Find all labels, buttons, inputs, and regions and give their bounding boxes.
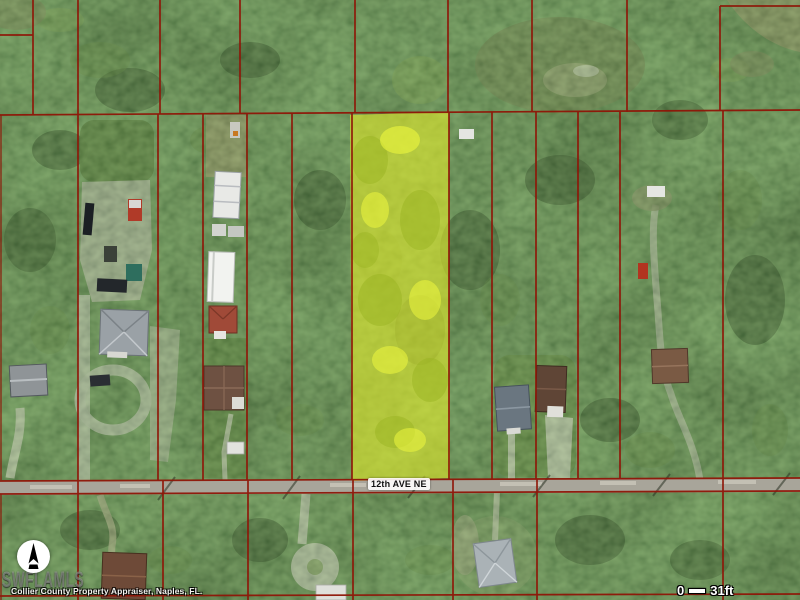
compass-logo <box>17 540 50 573</box>
scale-start-value: 0 <box>677 583 684 598</box>
aerial-parcel-map: 12th AVE NE 0 31ft SWFLAMLS Collier Coun… <box>0 0 800 600</box>
scale-end-value: 31ft <box>710 583 733 598</box>
street-name-label: 12th AVE NE <box>368 478 430 490</box>
compass-north-arrow-icon <box>17 540 50 573</box>
aerial-imagery <box>0 0 800 600</box>
highlighted-parcel <box>350 112 450 481</box>
map-scale-bar: 0 31ft <box>677 583 733 598</box>
data-source-attribution: Collier County Property Appraiser, Naple… <box>11 586 202 596</box>
scale-bar-segment <box>688 588 706 594</box>
